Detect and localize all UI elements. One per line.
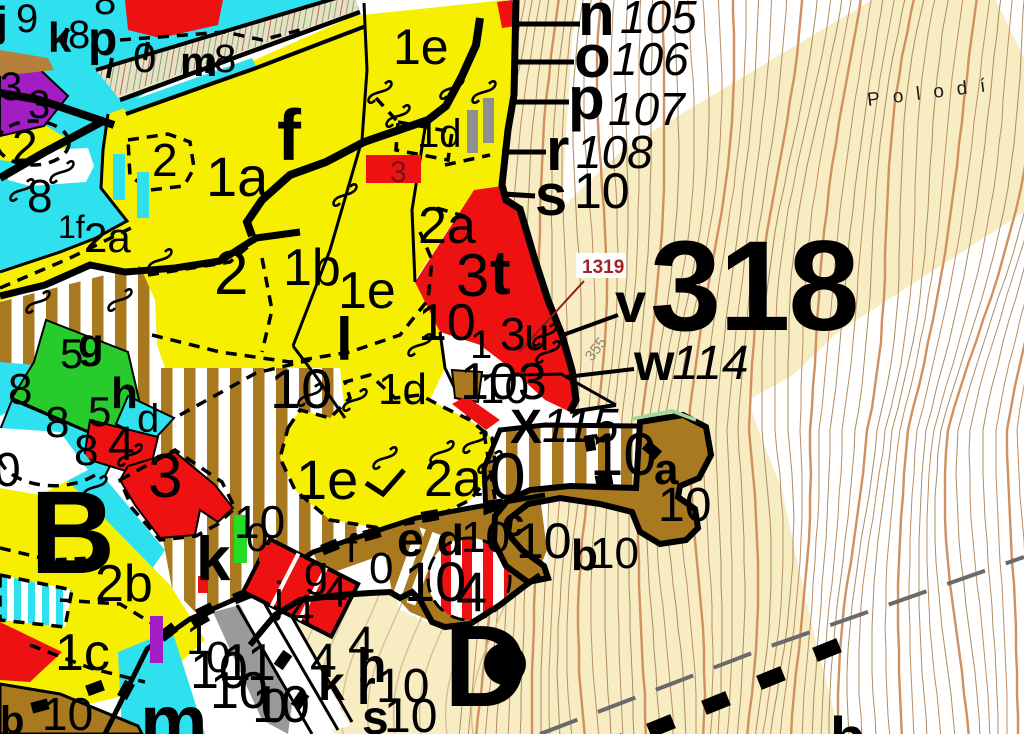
svg-text:k: k (196, 525, 231, 594)
svg-text:0: 0 (133, 34, 156, 81)
svg-text:0: 0 (0, 444, 21, 497)
svg-text:3: 3 (0, 65, 22, 109)
svg-text:1d: 1d (417, 112, 462, 156)
svg-text:4: 4 (108, 418, 135, 471)
svg-text:1c: 1c (55, 624, 110, 682)
svg-text:0: 0 (206, 633, 230, 682)
svg-text:8: 8 (8, 365, 32, 414)
svg-text:0: 0 (246, 516, 268, 560)
svg-text:8: 8 (214, 37, 236, 81)
svg-text:2a: 2a (84, 214, 131, 261)
svg-text:h: h (111, 369, 138, 418)
svg-text:10: 10 (42, 688, 93, 734)
svg-text:v: v (615, 271, 646, 334)
svg-text:p: p (568, 65, 605, 132)
svg-text:1f: 1f (58, 209, 85, 245)
svg-text:10: 10 (658, 479, 711, 532)
svg-text:2: 2 (214, 239, 248, 308)
svg-text:4: 4 (323, 568, 347, 617)
svg-text:10: 10 (270, 357, 332, 420)
svg-text:D: D (444, 601, 528, 731)
svg-text:b: b (0, 699, 24, 734)
svg-text:10: 10 (590, 421, 657, 488)
svg-text:10: 10 (574, 163, 630, 219)
svg-text:8: 8 (45, 398, 69, 447)
svg-text:10: 10 (384, 690, 437, 734)
svg-text:106: 106 (612, 33, 689, 85)
svg-text:1a: 1a (206, 145, 269, 208)
svg-text:10: 10 (418, 294, 476, 352)
svg-text:u: u (524, 308, 550, 360)
svg-text:9: 9 (16, 0, 38, 41)
svg-text:w: w (633, 334, 675, 392)
svg-text:t: t (490, 239, 511, 308)
svg-text:j: j (0, 0, 8, 45)
svg-text:3: 3 (148, 442, 182, 511)
svg-text:8: 8 (68, 13, 90, 57)
svg-text:m: m (180, 38, 217, 85)
svg-text:1e: 1e (296, 448, 358, 511)
svg-text:g: g (78, 320, 104, 367)
svg-text:l: l (336, 306, 353, 373)
svg-text:s: s (535, 163, 567, 228)
svg-text:k: k (318, 658, 345, 711)
svg-text:3: 3 (500, 308, 526, 360)
svg-text:0: 0 (261, 680, 288, 733)
svg-text:p: p (88, 13, 117, 66)
svg-text:0: 0 (369, 544, 393, 593)
svg-text:114: 114 (672, 337, 749, 390)
svg-text:f: f (277, 96, 302, 176)
svg-text:2: 2 (152, 134, 178, 186)
svg-text:2a: 2a (424, 450, 482, 508)
svg-text:2b: 2b (95, 555, 153, 613)
svg-text:10: 10 (480, 364, 529, 413)
svg-text:8: 8 (27, 170, 53, 222)
svg-text:1e: 1e (393, 19, 449, 75)
svg-text:1b: 1b (283, 239, 341, 297)
svg-text:3: 3 (390, 156, 407, 189)
svg-text:j: j (272, 573, 284, 622)
svg-text:1d: 1d (378, 365, 427, 414)
svg-text:2: 2 (12, 120, 38, 172)
svg-text:d: d (137, 397, 159, 441)
svg-text:10: 10 (516, 513, 572, 569)
svg-text:b: b (830, 706, 865, 734)
svg-text:f: f (346, 527, 358, 571)
svg-text:10: 10 (590, 529, 639, 578)
